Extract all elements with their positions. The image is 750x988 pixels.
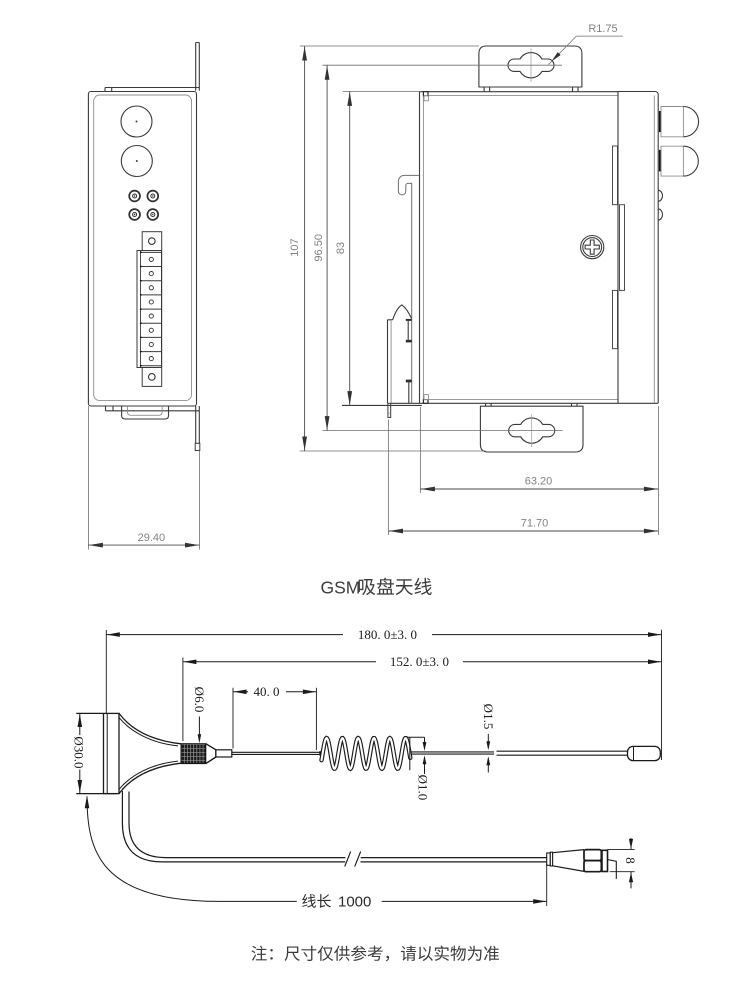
svg-text:96.50: 96.50: [313, 234, 325, 262]
svg-text:71.70: 71.70: [521, 518, 549, 530]
svg-text:Ø1.5: Ø1.5: [481, 704, 496, 730]
svg-text:R1.75: R1.75: [588, 23, 617, 35]
svg-text:40. 0: 40. 0: [254, 684, 280, 699]
svg-text:107: 107: [289, 238, 301, 256]
svg-text:63.20: 63.20: [525, 476, 553, 488]
svg-text:83: 83: [335, 242, 347, 254]
svg-text:8: 8: [623, 857, 638, 864]
svg-text:Ø6.0: Ø6.0: [192, 687, 207, 713]
svg-text:Ø30.0: Ø30.0: [72, 736, 87, 768]
svg-text:152. 0±3. 0: 152. 0±3. 0: [390, 654, 449, 669]
svg-text:Ø1.0: Ø1.0: [416, 775, 431, 801]
svg-text:29.40: 29.40: [138, 532, 166, 544]
svg-text:180. 0±3. 0: 180. 0±3. 0: [358, 627, 417, 642]
svg-text:1000: 1000: [338, 894, 371, 911]
svg-text:GSM: GSM: [321, 578, 361, 598]
